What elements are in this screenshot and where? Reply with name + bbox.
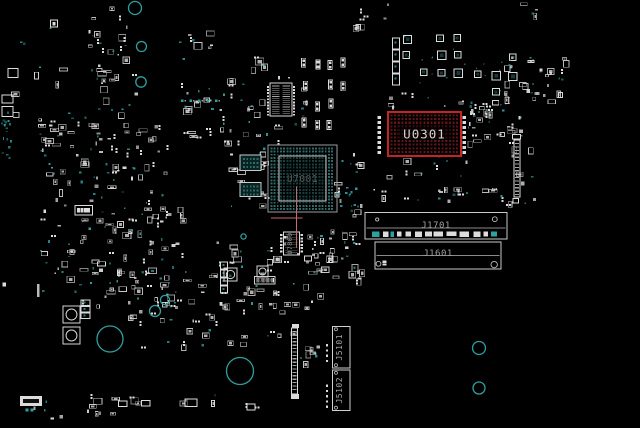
label-U7001: U7001 [287,174,318,185]
label-U7800: U7800 [286,232,294,254]
label-J1601: J1601 [423,249,453,259]
label-U0301: U0301 [403,127,446,142]
component-U7800[interactable]: U7800 [280,232,303,255]
label-J1701: J1701 [421,221,451,231]
label-J5101: J5101 [335,334,344,361]
board-canvas[interactable]: U0301U7001U7800R7000J1701J1601J5101J5102 [0,0,640,428]
boardview-app: U0301U7001U7800R7000J1701J1601J5101J5102 [0,0,640,428]
label-R7000: R7000 [256,278,274,284]
component-R7000[interactable]: R7000 [255,277,276,285]
label-J5102: J5102 [335,377,344,404]
